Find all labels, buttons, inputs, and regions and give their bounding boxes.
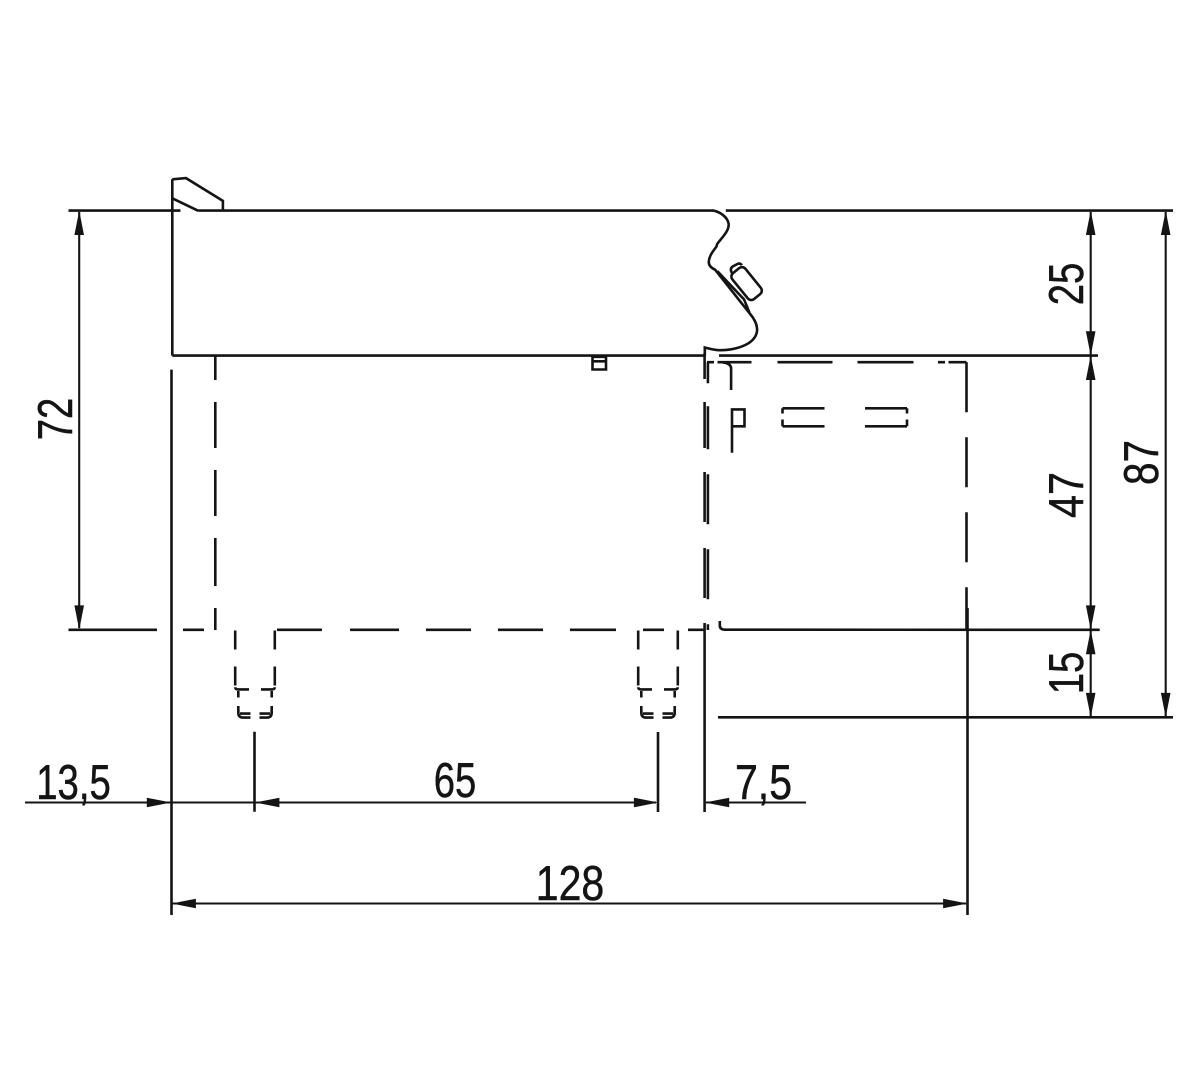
svg-text:47: 47 — [1040, 472, 1094, 518]
svg-text:25: 25 — [1040, 263, 1094, 306]
svg-text:128: 128 — [536, 857, 605, 911]
svg-text:13,5: 13,5 — [36, 756, 111, 810]
svg-text:87: 87 — [1115, 440, 1169, 485]
svg-text:7,5: 7,5 — [735, 756, 792, 810]
svg-text:72: 72 — [29, 398, 83, 441]
svg-text:15: 15 — [1040, 652, 1094, 695]
svg-text:65: 65 — [434, 754, 477, 808]
